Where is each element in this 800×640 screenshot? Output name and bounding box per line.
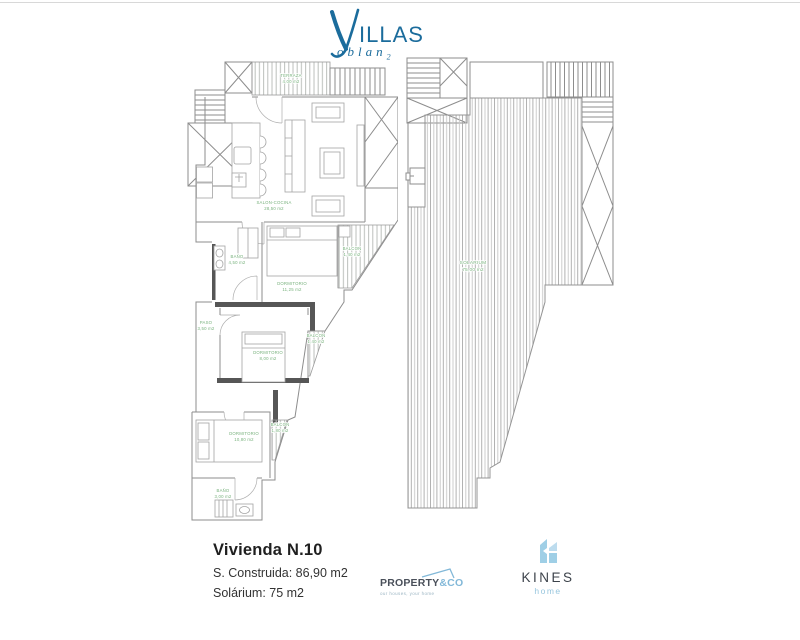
roof-landing: [470, 62, 543, 98]
room-label-dormitorio3: DORMITORIO: [229, 431, 259, 436]
room-label-balcon2: BALCON: [307, 333, 326, 338]
property-tagline: our houses, your home: [380, 591, 480, 596]
property-co-logo: PROPERTY&CO our houses, your home: [380, 566, 480, 596]
room-area-bano2: 3,00 m2: [215, 494, 232, 499]
room-area-solarium: 75,00 m2: [462, 267, 484, 273]
page-top-rule: [0, 2, 800, 3]
brochure-page: { "brand": { "initial": "V", "word": "IL…: [0, 0, 800, 640]
solarium-deck: [408, 98, 582, 508]
room-area-dormitorio3: 10,80 m2: [234, 437, 254, 442]
room-label-dormitorio2: DORMITORIO: [253, 350, 283, 355]
kines-house-icon: [537, 550, 559, 567]
room-label-paso: PASO: [200, 320, 213, 325]
solarium-stairs-left: [407, 58, 467, 123]
room-area-balcon3: 1,80 m2: [272, 428, 289, 433]
kitchen-furniture: [197, 123, 267, 198]
room-area-terraza: 4,00 m2: [283, 79, 300, 84]
brand-word: ILLAS: [359, 24, 424, 46]
living-room-furniture: [285, 103, 364, 216]
floor-plan-solarium: SOLARIUM 75,00 m2: [400, 56, 635, 518]
unit-details: Vivienda N.10 S. Construida: 86,90 m2 So…: [213, 541, 348, 600]
kines-wordmark: KINES: [516, 570, 580, 585]
room-area-balcon2: 1,40 m2: [308, 339, 325, 344]
roof-line-icon: [420, 566, 458, 584]
unit-title: Vivienda N.10: [213, 541, 348, 560]
kines-home-logo: KINES home: [516, 539, 580, 596]
room-label-balcon3: BALCON: [271, 422, 290, 427]
room-label-salon: SALON-COCINA: [256, 200, 291, 205]
room-area-balcon1: 1,40 m2: [344, 252, 361, 257]
villas-poblan-logo: ILLAS oblan2: [328, 7, 468, 59]
room-area-dormitorio1: 11,25 m2: [282, 287, 302, 292]
bedroom1-furniture: [214, 226, 350, 276]
kines-subtitle: home: [516, 586, 580, 596]
unit-solarium-area: Solárium: 75 m2: [213, 586, 348, 600]
room-label-bano2: BAÑO: [217, 488, 230, 493]
room-area-paso: 3,50 m2: [198, 326, 215, 331]
floor-plan-vivienda: TERRAZA 4,00 m2 SALON-COCINA 28,50 m2 BA…: [186, 56, 398, 534]
room-label-balcon1: BALCON: [343, 246, 362, 251]
room-area-salon: 28,50 m2: [264, 206, 284, 211]
room-area-bano1: 4,50 m2: [229, 260, 246, 265]
room-label-solarium: SOLARIUM: [460, 260, 487, 266]
room-label-bano1: BAÑO: [231, 254, 244, 259]
room-label-dormitorio1: DORMITORIO: [277, 281, 307, 286]
solarium-left-strip: [406, 123, 425, 207]
unit-built-area: S. Construida: 86,90 m2: [213, 566, 348, 580]
room-label-terraza: TERRAZA: [280, 73, 301, 78]
room-area-dormitorio2: 8,00 m2: [260, 356, 277, 361]
